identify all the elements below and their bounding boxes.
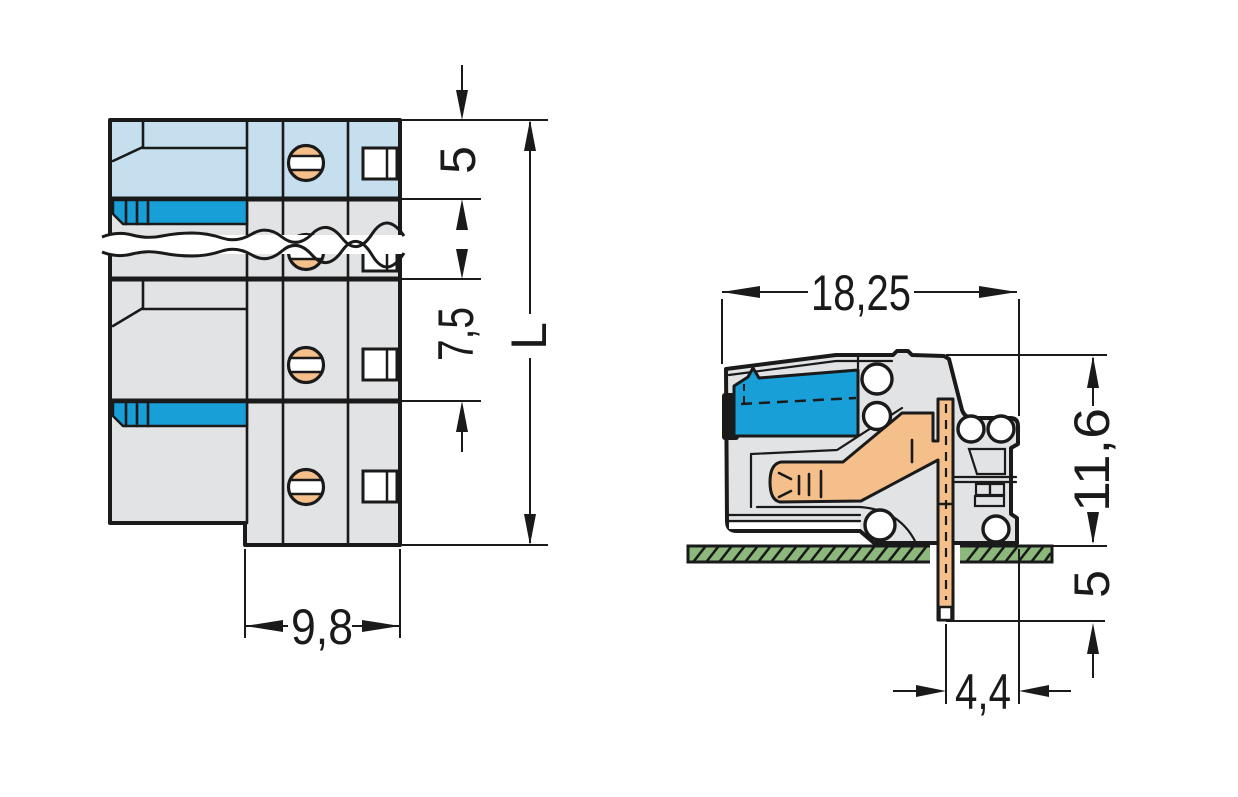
- arrow-up-icon: [1087, 623, 1099, 654]
- dim-label-depth: 18,25: [811, 265, 911, 321]
- window-2: [363, 349, 397, 380]
- pin-tip: [940, 607, 952, 620]
- housing-hole-2: [864, 403, 891, 430]
- dim-label-depth: 9,8: [291, 599, 353, 655]
- arrow-up-icon: [456, 199, 468, 230]
- housing-hole-4: [988, 416, 1014, 442]
- arrow-down-icon: [1087, 512, 1099, 544]
- arrow-right-icon: [362, 620, 400, 632]
- front-end-section: [110, 120, 400, 199]
- arrow-up-icon: [1087, 356, 1099, 388]
- housing-hole-3: [958, 416, 984, 442]
- dim-label-end-height: 5: [430, 146, 486, 174]
- base-recess: [729, 523, 860, 529]
- screw-3: [289, 470, 324, 505]
- arrow-up-icon: [524, 120, 536, 151]
- screw-1: [289, 146, 324, 181]
- arrow-left-icon: [1019, 685, 1049, 697]
- housing-hole-1: [862, 364, 892, 394]
- dim-label-height: 11,6: [1064, 408, 1120, 512]
- window-1: [363, 148, 397, 179]
- arrow-left-icon: [722, 286, 760, 298]
- dim-label-pin-length: 5: [1064, 570, 1120, 598]
- arrow-left-icon: [245, 620, 283, 632]
- arrow-down-icon: [524, 514, 536, 545]
- arrow-up-icon: [456, 401, 468, 432]
- arrow-down-icon: [456, 90, 468, 120]
- connector-dimension-drawing: 5 7,5 L 9,8: [0, 0, 1238, 797]
- side-view: [688, 351, 1052, 620]
- locking-strip-2: [113, 402, 247, 426]
- arrow-down-icon: [456, 249, 468, 279]
- dim-label-pin-offset: 4,4: [955, 664, 1011, 720]
- arrow-right-icon: [979, 286, 1017, 298]
- dim-label-pitch: 7,5: [428, 307, 484, 361]
- screw-2: [289, 348, 324, 383]
- housing-hole-6: [983, 516, 1009, 542]
- window-3: [363, 471, 397, 502]
- technical-drawing-page: 5 7,5 L 9,8: [0, 0, 1238, 797]
- locking-strip-1: [113, 200, 247, 224]
- front-view: [102, 120, 405, 545]
- arrow-right-icon: [916, 685, 946, 697]
- housing-hole-5: [865, 510, 895, 540]
- dim-label-length: L: [501, 322, 557, 350]
